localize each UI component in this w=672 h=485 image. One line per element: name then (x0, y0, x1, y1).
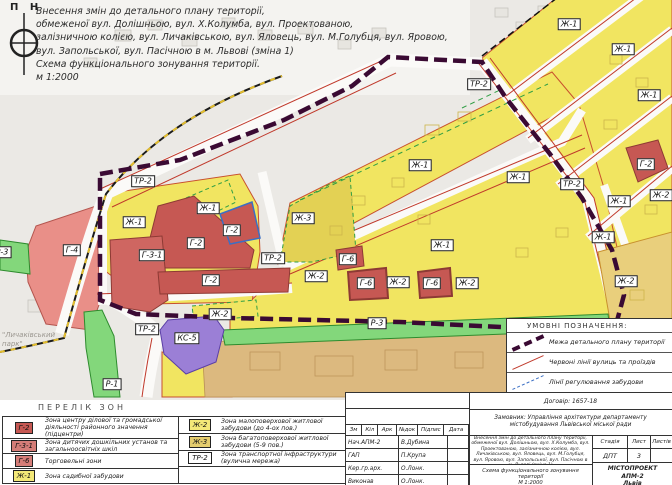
sheets-total (651, 449, 672, 462)
zone-desc: Зона дитячих дошкільних установ та загал… (45, 439, 178, 453)
title-block-right: Договір: 1657-18 Замовник: Управління ар… (469, 393, 672, 485)
zone-code-swatch: ТР-2 (179, 452, 221, 464)
zone-g2-bar (158, 268, 290, 294)
symbol-row: Лінії регулювання забудови (507, 372, 672, 392)
zone-code: Ж-1 (13, 470, 36, 482)
zone-list-row: Г-6Торговельні зони (3, 454, 178, 469)
zone-code: Ж-3 (189, 436, 212, 448)
sheet-title: Схема функціонального зонування територі… (469, 465, 593, 485)
drawing-title: Внесення змін до детального плану терито… (36, 5, 466, 84)
zone-code: ТР-2 (188, 452, 211, 464)
symbol-row: Червоні лінії вулиць та проїздів (507, 352, 672, 372)
signature-table: ЗмКілАрк№докПідписДата Нач.АПМ-2В.Дубина… (346, 393, 470, 485)
stage-header: СтадіяЛистЛистів (593, 435, 672, 449)
sign-row: ВиконавО.Лонк. (346, 474, 469, 485)
sheet-scale: М 1:2000 (518, 480, 542, 485)
zone-code-swatch: Ж-1 (3, 470, 45, 482)
zoning-scheme-sheet: П Н Внесення змін до детального плану те… (0, 0, 672, 485)
contract-number: Договір: 1657-18 (469, 393, 672, 410)
symbol-desc: Червоні лінії вулиць та проїздів (549, 359, 672, 366)
symbol-desc: Межа детального плану території (549, 339, 672, 346)
title-line: обмеженої вул. Долішньою, вул. Х.Колумба… (36, 18, 466, 31)
sign-col-header: Підпис (418, 424, 444, 435)
symbol-desc: Лінії регулювання забудови (549, 379, 672, 386)
sign-col-header: Дата (444, 424, 469, 435)
zone-r3-left (0, 240, 30, 274)
sign-role: Виконав (346, 475, 399, 485)
sign-row: Нач.АПМ-2В.Дубина (346, 435, 469, 449)
zone-list-row-empty (179, 467, 354, 483)
sign-col-header: Зм (346, 424, 362, 435)
zone-desc: Зона садибної забудови (45, 473, 178, 480)
zone-code-swatch: Г-2 (3, 422, 45, 434)
stage-col-header: Лист (628, 435, 651, 448)
zone-g6-c (418, 268, 452, 298)
stage-col-header: Стадія (593, 435, 628, 448)
zone-desc: Зона транспортної інфраструктури (вуличн… (221, 451, 354, 465)
project-description: Внесення змін до детального плану терито… (469, 435, 593, 465)
sign-signature (448, 475, 469, 485)
sign-name: О.Лонк. (399, 475, 448, 485)
zone-list-title: ПЕРЕЛІК ЗОН (38, 403, 357, 412)
sign-col-header: №док (397, 424, 419, 435)
regulation-lines-sample-icon (507, 382, 549, 383)
title-line: м 1:2000 (36, 71, 466, 84)
client-name: Замовник: Управління архітектури департа… (469, 409, 672, 436)
red-lines-sample-icon (507, 362, 549, 363)
stage-values: ДПТ 3 (593, 449, 672, 463)
zone-g6-b (348, 268, 388, 300)
sign-row: ГАПП.Крупа (346, 448, 469, 462)
zone-list-row: Ж-1Зона садибної забудови (3, 469, 178, 483)
signature-header: ЗмКілАрк№докПідписДата (346, 424, 469, 435)
title-block: ЗмКілАрк№докПідписДата Нач.АПМ-2В.Дубина… (345, 392, 672, 485)
stage-col-header: Листів (651, 435, 672, 448)
sign-row: Кер.гр.арх.О.Лонк. (346, 461, 469, 475)
stage-table: СтадіяЛистЛистів ДПТ 3 МІСТОПРОЕКТАПМ-2Л… (593, 435, 672, 485)
zone-code-swatch: Г-3-1 (3, 440, 45, 452)
zone-desc: Торговельні зони (45, 458, 178, 465)
symbols-panel: УМОВНІ ПОЗНАЧЕННЯ: Межа детального плану… (506, 318, 672, 398)
sign-col-header: Кіл (362, 424, 378, 435)
org-line: АПМ-2 (593, 473, 672, 481)
zone-list-col-2: Ж-2Зона малоповерхової житлової забудови… (179, 417, 354, 483)
zone-code-swatch: Ж-3 (179, 436, 221, 448)
title-line: залізничною колією, вул. Личаківською, в… (36, 31, 466, 44)
symbol-row: Межа детального плану території (507, 332, 672, 352)
zone-code: Г-3-1 (11, 440, 37, 452)
zone-list-row: ТР-2Зона транспортної інфраструктури (ву… (179, 451, 354, 468)
organization: МІСТОПРОЕКТАПМ-2Львів (593, 463, 672, 485)
sheet-title-text: Схема функціонального зонування територі… (482, 468, 578, 480)
zone-code: Г-2 (15, 422, 34, 434)
zone-code: Г-6 (15, 455, 34, 467)
boundary-sample-icon (507, 341, 549, 345)
title-line: Внесення змін до детального плану терито… (36, 5, 466, 18)
symbols-rows: Межа детального плану територіїЧервоні л… (507, 332, 672, 392)
zone-code-swatch: Г-6 (3, 455, 45, 467)
zone-list-row: Ж-2Зона малоповерхової житлової забудови… (179, 417, 354, 434)
zone-list-col-1: Г-2Зона центру ділової та громадської ді… (3, 417, 179, 483)
title-line: Схема функціонального зонування територі… (36, 58, 466, 71)
zone-list-row: Г-3-1Зона дитячих дошкільних установ та … (3, 439, 178, 454)
org-line: МІСТОПРОЕКТ (593, 465, 672, 473)
title-line: вул. Запольської, вул. Пасічною в м. Льв… (36, 45, 466, 58)
symbols-title: УМОВНІ ПОЗНАЧЕННЯ: (527, 322, 672, 330)
zone-desc: Зона багатоповерхової житлової забудови … (221, 435, 354, 449)
zone-desc: Зона центру ділової та громадської діяль… (45, 417, 178, 438)
zone-list-table: Г-2Зона центру ділової та громадської ді… (2, 416, 355, 484)
zone-desc: Зона малоповерхової житлової забудови (д… (221, 418, 354, 432)
zone-list-row: Г-2Зона центру ділової та громадської ді… (3, 417, 178, 439)
zone-g6-a (336, 246, 364, 270)
zone-code: Ж-2 (189, 419, 212, 431)
sign-col-header: Арк (378, 424, 396, 435)
stage-value: ДПТ (593, 449, 628, 462)
sheet-number: 3 (628, 449, 651, 462)
zone-list-row: Ж-3Зона багатоповерхової житлової забудо… (179, 434, 354, 451)
park-label: "Личаківський парк" (2, 331, 60, 348)
zone-list-panel: ПЕРЕЛІК ЗОН Г-2Зона центру ділової та гр… (0, 400, 357, 485)
zone-code-swatch: Ж-2 (179, 419, 221, 431)
org-line: Львів (593, 480, 672, 485)
